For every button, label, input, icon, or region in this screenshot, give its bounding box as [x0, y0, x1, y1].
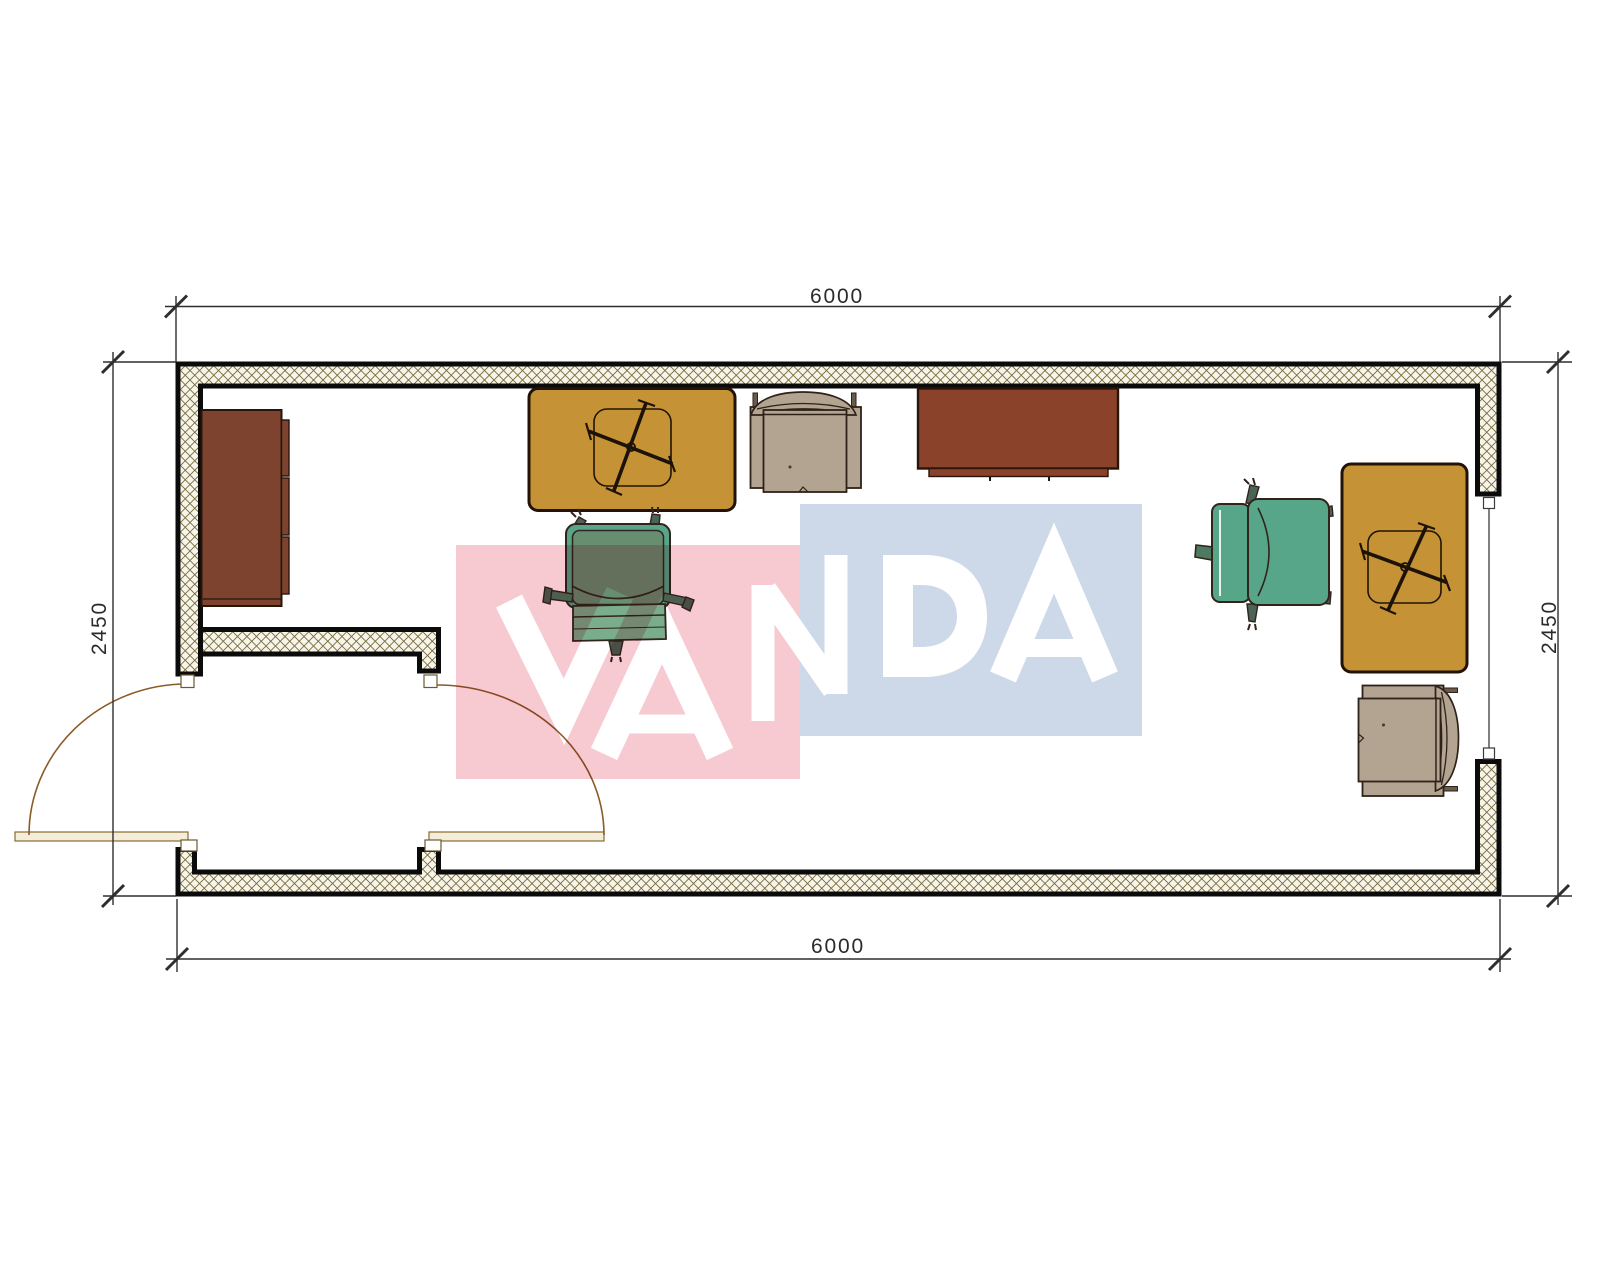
svg-text:2450: 2450	[88, 601, 111, 655]
svg-text:2450: 2450	[1538, 600, 1561, 654]
svg-text:6000: 6000	[811, 935, 865, 958]
svg-text:6000: 6000	[810, 285, 864, 308]
